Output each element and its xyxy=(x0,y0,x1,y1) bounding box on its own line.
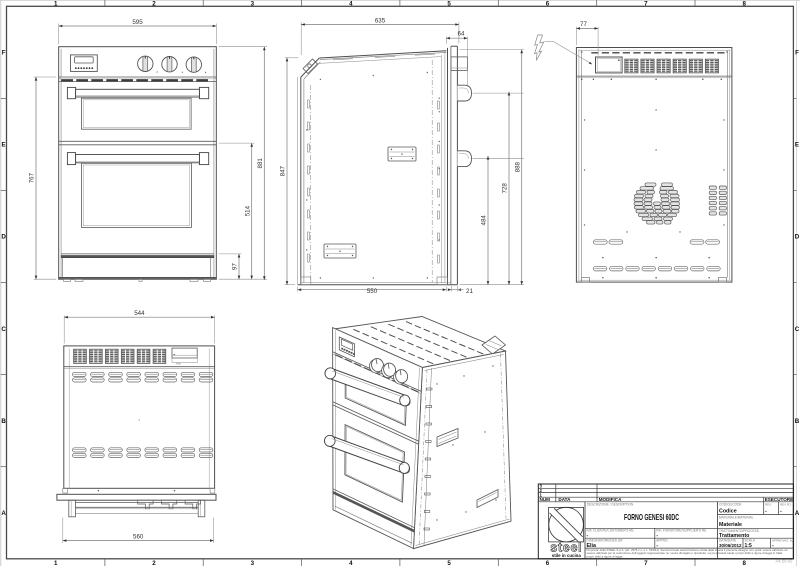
svg-text:21: 21 xyxy=(466,288,473,295)
svg-text:5: 5 xyxy=(447,560,451,566)
svg-text:8: 8 xyxy=(742,560,746,566)
svg-text:FORNO GENESI 60DC: FORNO GENESI 60DC xyxy=(624,513,679,522)
svg-text:C: C xyxy=(795,326,800,333)
svg-text:DESCRIZIONE / DESCRIPTION: DESCRIZIONE / DESCRIPTION xyxy=(587,503,634,507)
svg-text:2: 2 xyxy=(152,560,156,566)
svg-text:3: 3 xyxy=(251,560,255,566)
svg-text:881: 881 xyxy=(257,158,264,169)
svg-text:Materiale: Materiale xyxy=(719,522,742,528)
svg-text:RIF. CLIENTE/CUSTOMER'S RE.: RIF. CLIENTE/CUSTOMER'S RE. xyxy=(587,529,635,533)
svg-text:C: C xyxy=(1,326,6,333)
svg-text:5: 5 xyxy=(447,0,451,7)
svg-text:CODICE/CODE: CODICE/CODE xyxy=(719,503,742,507)
svg-text:4: 4 xyxy=(349,560,353,566)
svg-text:F: F xyxy=(2,50,6,57)
svg-text:514: 514 xyxy=(244,205,251,216)
svg-text:728: 728 xyxy=(502,183,509,194)
svg-text:REV.: REV. xyxy=(765,503,772,507)
svg-text:Codice: Codice xyxy=(719,508,737,514)
svg-text:544: 544 xyxy=(134,310,145,317)
svg-text:APPRO.: APPRO. xyxy=(656,538,668,542)
svg-text:1: 1 xyxy=(54,560,58,566)
svg-text:MATERIALE/MATERIAL: MATERIALE/MATERIAL xyxy=(719,515,754,519)
svg-text:D: D xyxy=(795,234,800,241)
svg-text:560: 560 xyxy=(133,533,144,540)
svg-text:-: - xyxy=(765,508,767,514)
svg-text:stile in cucina: stile in cucina xyxy=(552,553,582,558)
svg-text:DATA: DATA xyxy=(558,497,571,502)
svg-text:REV.FO.: REV.FO. xyxy=(780,503,792,507)
svg-text:6: 6 xyxy=(546,0,550,7)
svg-text:635: 635 xyxy=(375,17,386,24)
svg-text:MODIFICA: MODIFICA xyxy=(599,497,622,502)
svg-text:DISEGNATORE/DES.GR: DISEGNATORE/DES.GR xyxy=(587,538,624,542)
svg-text:888: 888 xyxy=(514,161,521,172)
svg-text:64: 64 xyxy=(458,31,465,38)
svg-text:B: B xyxy=(1,418,6,425)
svg-text:-: - xyxy=(780,508,782,514)
svg-text:2: 2 xyxy=(152,0,156,7)
svg-text:847: 847 xyxy=(280,165,287,176)
svg-text:1: 1 xyxy=(54,0,58,7)
svg-text:E: E xyxy=(2,142,6,149)
svg-text:484: 484 xyxy=(481,215,488,226)
svg-text:btw: btw xyxy=(176,361,182,365)
svg-text:propri diritti a rigore di leg: propri diritti a rigore di legge. xyxy=(587,554,624,558)
svg-text:DATA/DATE: DATA/DATE xyxy=(719,539,736,543)
svg-text:B: B xyxy=(795,418,800,425)
svg-text:RIF. FORNITORE/SUPPLIER'S RE.: RIF. FORNITORE/SUPPLIER'S RE. xyxy=(656,529,707,533)
svg-text:4: 4 xyxy=(349,0,353,7)
svg-text:ESECUTORE: ESECUTORE xyxy=(765,497,794,502)
svg-text:SCALA: SCALA xyxy=(745,539,756,543)
svg-text:7: 7 xyxy=(644,560,648,566)
svg-text:77: 77 xyxy=(580,21,587,28)
svg-text:APPROVAZ. by: APPROVAZ. by xyxy=(772,539,793,543)
svg-text:A: A xyxy=(795,510,800,517)
svg-text:6: 6 xyxy=(546,560,550,566)
svg-text:550: 550 xyxy=(367,288,378,295)
svg-text:7: 7 xyxy=(644,0,648,7)
svg-text:595: 595 xyxy=(132,19,143,26)
svg-text:767: 767 xyxy=(29,172,36,183)
svg-text:D: D xyxy=(1,234,6,241)
svg-text:F: F xyxy=(795,50,799,57)
svg-text:97: 97 xyxy=(232,263,239,270)
svg-text:3: 3 xyxy=(251,0,255,7)
svg-text:E: E xyxy=(795,142,799,149)
svg-text:NUM: NUM xyxy=(540,497,551,502)
svg-text:A: A xyxy=(1,510,6,517)
svg-text:8: 8 xyxy=(742,0,746,7)
